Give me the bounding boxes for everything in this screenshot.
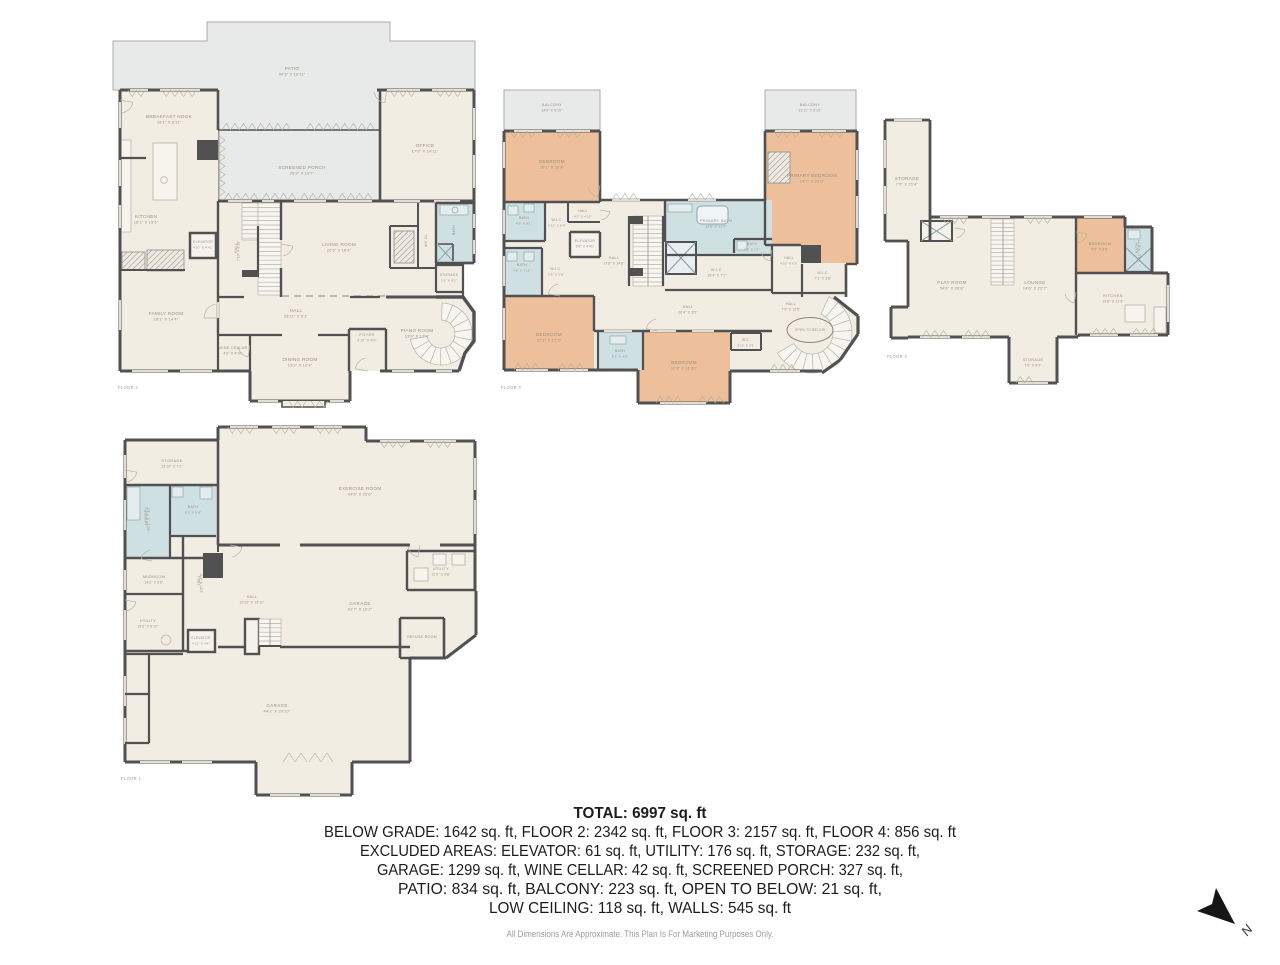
svg-text:PATIO: 834 sq. ft, BALCONY: 22: PATIO: 834 sq. ft, BALCONY: 223 sq. ft, … <box>398 881 882 898</box>
svg-text:GARAGE: 1299 sq. ft, WINE CELL: GARAGE: 1299 sq. ft, WINE CELLAR: 42 sq.… <box>377 862 903 879</box>
svg-text:BEDROOM: BEDROOM <box>1089 241 1112 246</box>
svg-text:10'10" X 15'11": 10'10" X 15'11" <box>239 600 265 604</box>
svg-text:FLOOR 3: FLOOR 3 <box>501 385 521 390</box>
svg-text:BEDROOM: BEDROOM <box>539 159 565 164</box>
svg-text:14'0" X 6'10": 14'0" X 6'10" <box>541 108 563 112</box>
svg-text:FLOOR 4: FLOOR 4 <box>887 354 907 359</box>
svg-text:11'9" X 11'20": 11'9" X 11'20" <box>671 365 698 370</box>
svg-text:14'6" X 22'7": 14'6" X 22'7" <box>1023 285 1048 290</box>
svg-text:FLOOR 2: FLOOR 2 <box>118 385 138 390</box>
svg-text:W.I.C.: W.I.C. <box>551 218 562 222</box>
svg-text:16'1" X 11'9": 16'1" X 11'9" <box>540 164 565 169</box>
svg-text:EXCLUDED AREAS: ELEVATOR: 61 s: EXCLUDED AREAS: ELEVATOR: 61 sq. ft, UTI… <box>360 843 920 860</box>
svg-text:OFFICE: OFFICE <box>416 143 435 148</box>
svg-text:KITCHEN: KITCHEN <box>1103 293 1123 298</box>
svg-text:BREAKFAST NOOK: BREAKFAST NOOK <box>146 114 193 119</box>
svg-text:7'0" X 21'4": 7'0" X 21'4" <box>896 181 919 186</box>
svg-text:17'8" X 14'8": 17'8" X 14'8" <box>603 261 625 265</box>
svg-text:3'3" X 9'2": 3'3" X 9'2" <box>441 278 457 282</box>
svg-text:REFUSE ROOM: REFUSE ROOM <box>407 635 437 639</box>
svg-text:54'6" X 20'8": 54'6" X 20'8" <box>940 285 965 290</box>
svg-text:PIANO ROOM: PIANO ROOM <box>401 328 434 333</box>
svg-text:4'10" X 6'5": 4'10" X 6'5" <box>780 261 798 265</box>
svg-text:9'6" X 7'11": 9'6" X 7'11" <box>513 268 531 272</box>
svg-text:HALL: HALL <box>683 305 694 309</box>
svg-text:4'5" X 5'8": 4'5" X 5'8" <box>548 272 564 276</box>
svg-text:13'11" X 6'10": 13'11" X 6'10" <box>798 108 822 112</box>
svg-text:44'3" X 18'11": 44'3" X 18'11" <box>279 71 306 76</box>
svg-text:13'10" X 7'2": 13'10" X 7'2" <box>161 464 183 468</box>
svg-text:BATH: BATH <box>452 225 456 235</box>
svg-text:GARAGE: GARAGE <box>266 703 287 708</box>
svg-text:EXERCISE ROOM: EXERCISE ROOM <box>339 486 382 491</box>
svg-text:4'10" X 4'9": 4'10" X 4'9" <box>357 338 377 342</box>
svg-text:SCREENED PORCH: SCREENED PORCH <box>278 165 326 170</box>
svg-text:44'1" X 29'10": 44'1" X 29'10" <box>264 708 291 713</box>
svg-text:FOYER: FOYER <box>359 332 374 337</box>
svg-text:44'5" X 22'6": 44'5" X 22'6" <box>348 491 373 496</box>
svg-text:PATIO: PATIO <box>285 66 300 71</box>
svg-text:LOUNGE: LOUNGE <box>1024 280 1045 285</box>
svg-text:61'7" X 16'2": 61'7" X 16'2" <box>348 606 373 611</box>
svg-text:HALL: HALL <box>609 256 619 260</box>
svg-text:18'1" X 8'11": 18'1" X 8'11" <box>157 119 182 124</box>
svg-text:All Dimensions Are Approximate: All Dimensions Are Approximate. This Pla… <box>507 929 774 939</box>
svg-text:UTILITY: UTILITY <box>433 567 449 571</box>
svg-text:STORAGE: STORAGE <box>440 273 459 277</box>
svg-text:BATH: BATH <box>519 216 529 220</box>
svg-text:7'10" X 8'10": 7'10" X 8'10" <box>237 240 241 261</box>
svg-text:W.I.C.: W.I.C. <box>711 268 723 272</box>
svg-text:W.C.: W.C. <box>742 338 750 342</box>
svg-text:BATH: BATH <box>747 242 757 246</box>
svg-text:11'9" X 9'8": 11'9" X 9'8" <box>432 572 452 576</box>
svg-text:BATH: BATH <box>517 263 527 267</box>
svg-text:BATH: BATH <box>615 349 625 353</box>
svg-text:4'11" X 8'0": 4'11" X 8'0" <box>548 223 566 227</box>
svg-text:22'6" X 16'4": 22'6" X 16'4" <box>327 247 352 252</box>
svg-text:FAMILY ROOM: FAMILY ROOM <box>149 311 184 316</box>
svg-text:PLAY ROOM: PLAY ROOM <box>937 280 967 285</box>
svg-text:GARAGE: GARAGE <box>349 601 370 606</box>
svg-text:OPEN TO BELOW: OPEN TO BELOW <box>795 328 826 332</box>
svg-text:HALL: HALL <box>784 256 794 260</box>
svg-text:28'11" X 5'1": 28'11" X 5'1" <box>284 313 309 318</box>
svg-text:14'7" X 22'0": 14'7" X 22'0" <box>800 178 825 183</box>
svg-text:KITCHEN: KITCHEN <box>135 214 157 219</box>
svg-text:PRIMARY BEDROOM: PRIMARY BEDROOM <box>787 173 837 178</box>
svg-text:HALL: HALL <box>578 209 587 213</box>
svg-text:13'9" X 12'4": 13'9" X 12'4" <box>288 362 313 367</box>
svg-text:5'8" X 4'41": 5'8" X 4'41" <box>576 244 595 248</box>
svg-text:MUDROOM: MUDROOM <box>143 575 165 579</box>
svg-text:17'2" X 12'3": 17'2" X 12'3" <box>537 337 562 342</box>
svg-text:8'2" X 4'6": 8'2" X 4'6" <box>612 354 628 358</box>
svg-text:3'10" X 2'9": 3'10" X 2'9" <box>737 343 754 347</box>
svg-text:BALCONY: BALCONY <box>800 103 820 107</box>
svg-text:STORAGE: STORAGE <box>1023 358 1044 362</box>
svg-text:16'4" X 7'1": 16'4" X 7'1" <box>707 273 727 277</box>
svg-text:FLOOR 1: FLOOR 1 <box>121 776 141 781</box>
svg-text:4'11" X 8'7": 4'11" X 8'7" <box>1137 239 1142 261</box>
svg-text:7'0" X 4'3": 7'0" X 4'3" <box>1024 363 1042 367</box>
svg-text:4'10" X 4'41": 4'10" X 4'41" <box>193 245 213 249</box>
svg-text:4'2" X 4'10": 4'2" X 4'10" <box>574 214 592 218</box>
svg-text:HALL: HALL <box>247 595 258 599</box>
svg-text:STORAGE: STORAGE <box>895 176 919 181</box>
svg-text:16'1" X 19'5": 16'1" X 19'5" <box>134 219 159 224</box>
svg-text:PRIMARY BATH: PRIMARY BATH <box>700 218 732 223</box>
svg-text:LOW CEILING: 118 sq. ft, WALLS: LOW CEILING: 118 sq. ft, WALLS: 545 sq. … <box>489 900 792 917</box>
svg-text:18'1" X 14'4": 18'1" X 14'4" <box>154 316 179 321</box>
svg-text:BEDROOM: BEDROOM <box>671 360 697 365</box>
svg-text:ELEVATOR: ELEVATOR <box>575 239 596 243</box>
svg-text:13'9" X 12'9": 13'9" X 12'9" <box>405 333 430 338</box>
svg-text:UTILITY: UTILITY <box>140 619 156 623</box>
svg-text:3'5" X 4'5": 3'5" X 4'5" <box>199 572 204 592</box>
svg-text:6'2" X 2'3": 6'2" X 2'3" <box>744 247 759 251</box>
svg-text:BELOW GRADE: 1642 sq. ft, FLOO: BELOW GRADE: 1642 sq. ft, FLOOR 2: 2342 … <box>324 824 957 841</box>
svg-text:DINING ROOM: DINING ROOM <box>283 357 318 362</box>
svg-text:4'11" X 4'4": 4'11" X 4'4" <box>192 641 209 645</box>
svg-text:HALL: HALL <box>290 308 303 313</box>
svg-text:WINE CELLAR: WINE CELLAR <box>218 346 247 350</box>
svg-text:LIVING ROOM: LIVING ROOM <box>322 242 356 247</box>
svg-text:7'1" X 3'8": 7'1" X 3'8" <box>815 276 832 280</box>
svg-text:ELEVATOR: ELEVATOR <box>193 240 213 244</box>
svg-text:12'8" X 11'0": 12'8" X 11'0" <box>1102 299 1124 303</box>
svg-text:19'2" X 9'10": 19'2" X 9'10" <box>137 624 159 628</box>
svg-text:BALCONY: BALCONY <box>542 103 562 107</box>
svg-text:A/V CL.: A/V CL. <box>424 233 428 247</box>
svg-text:10'2" X 7'10": 10'2" X 7'10" <box>146 506 151 531</box>
svg-text:HALL: HALL <box>786 302 796 306</box>
svg-text:4'6" X 8'1": 4'6" X 8'1" <box>516 221 532 225</box>
svg-text:7'9" X 13'5": 7'9" X 13'5" <box>782 307 801 311</box>
svg-text:14'2" X 6'8": 14'2" X 6'8" <box>145 580 164 584</box>
svg-text:28'3" X 13'7": 28'3" X 13'7" <box>290 170 315 175</box>
svg-text:BEDROOM: BEDROOM <box>536 332 562 337</box>
svg-text:9'6" X 8'5": 9'6" X 8'5" <box>1091 247 1109 251</box>
svg-text:8'1" X 6'8": 8'1" X 6'8" <box>185 510 201 514</box>
svg-text:4'2" X 4'10": 4'2" X 4'10" <box>223 351 243 355</box>
svg-text:17'8" X 14'11": 17'8" X 14'11" <box>412 148 439 153</box>
svg-text:BATH: BATH <box>188 505 198 509</box>
svg-text:W.I.C.: W.I.C. <box>550 267 561 271</box>
svg-text:STORAGE: STORAGE <box>161 458 183 463</box>
svg-text:TOTAL: 6997 sq. ft: TOTAL: 6997 sq. ft <box>574 805 708 822</box>
svg-text:26'4" X 3'5": 26'4" X 3'5" <box>678 310 698 314</box>
svg-text:W.I.C.: W.I.C. <box>817 271 829 275</box>
svg-text:ELEVATOR: ELEVATOR <box>191 636 211 640</box>
svg-text:13'6" X 12'2": 13'6" X 12'2" <box>705 224 727 228</box>
